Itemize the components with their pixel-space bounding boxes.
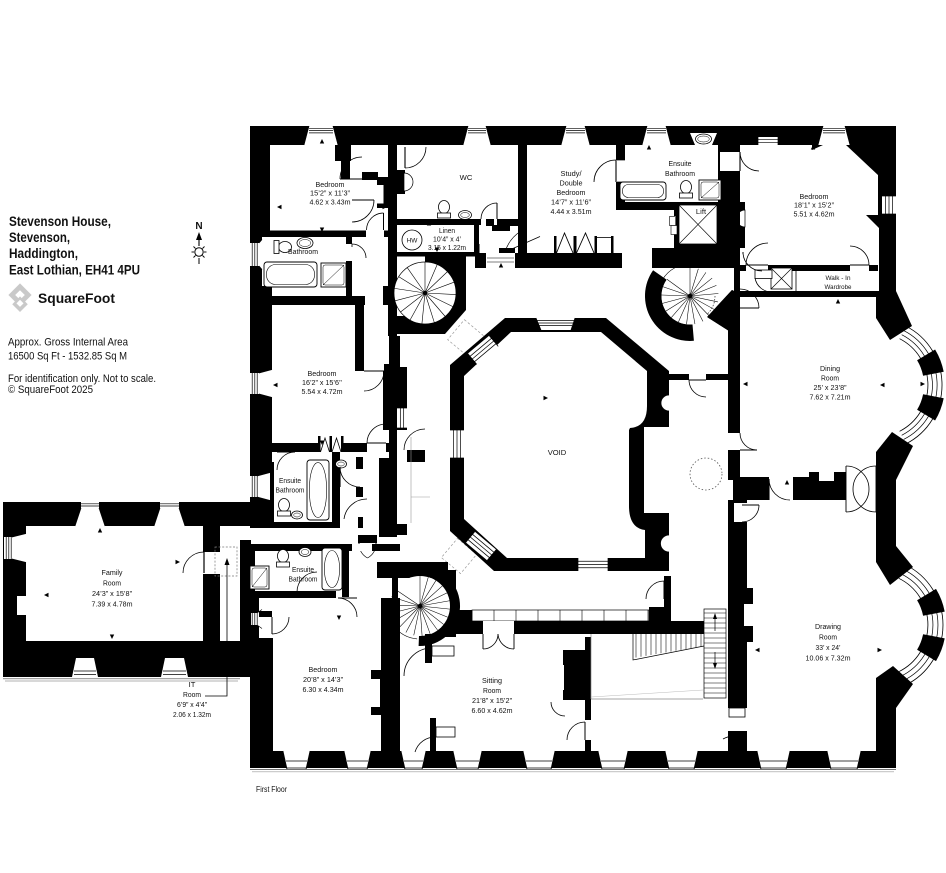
svg-text:Double: Double	[560, 179, 583, 188]
svg-text:16’2” x 15’6’’: 16’2” x 15’6’’	[302, 378, 342, 387]
svg-text:25’ x 23’8”: 25’ x 23’8”	[814, 383, 847, 392]
svg-text:21’8” x 15’2”: 21’8” x 15’2”	[472, 696, 512, 705]
svg-text:7.39 x 4.78m: 7.39 x 4.78m	[92, 600, 133, 609]
svg-text:IT: IT	[189, 680, 196, 689]
svg-text:Ensuite: Ensuite	[279, 476, 301, 485]
svg-text:16500 Sq Ft - 1532.85 Sq M: 16500 Sq Ft - 1532.85 Sq M	[8, 351, 127, 363]
svg-text:6.60 x 4.62m: 6.60 x 4.62m	[472, 706, 513, 715]
svg-text:Lift: Lift	[696, 207, 707, 216]
svg-text:4.62 x 3.43m: 4.62 x 3.43m	[310, 197, 351, 206]
svg-text:Bathroom: Bathroom	[288, 247, 318, 256]
svg-text:Bedroom: Bedroom	[800, 192, 829, 201]
svg-text:5.51 x 4.62m: 5.51 x 4.62m	[794, 209, 835, 218]
svg-text:Family: Family	[102, 568, 123, 577]
svg-text:18’1” x 15’2”: 18’1” x 15’2”	[794, 201, 834, 210]
svg-text:3.15 x 1.22m: 3.15 x 1.22m	[428, 243, 466, 252]
svg-text:Wardrobe: Wardrobe	[825, 284, 852, 291]
svg-text:Approx. Gross Internal Area: Approx. Gross Internal Area	[8, 337, 128, 349]
svg-text:Room: Room	[103, 579, 121, 588]
svg-text:4.44 x 3.51m: 4.44 x 3.51m	[551, 207, 592, 216]
svg-text:24’3” x 15’8”: 24’3” x 15’8”	[92, 589, 132, 598]
svg-text:10.06 x 7.32m: 10.06 x 7.32m	[806, 654, 851, 663]
svg-text:2.06 x 1.32m: 2.06 x 1.32m	[173, 710, 211, 719]
svg-text:Room: Room	[483, 686, 501, 695]
svg-text:Bathroom: Bathroom	[276, 486, 305, 495]
svg-text:7.62 x 7.21m: 7.62 x 7.21m	[810, 393, 851, 402]
svg-text:WC: WC	[460, 173, 473, 182]
svg-text:Stevenson,: Stevenson,	[9, 229, 70, 245]
svg-text:Bedroom: Bedroom	[308, 369, 337, 378]
svg-text:33’ x 24’: 33’ x 24’	[816, 643, 841, 652]
svg-text:N: N	[195, 221, 202, 232]
svg-text:5.54 x 4.72m: 5.54 x 4.72m	[302, 387, 343, 396]
svg-text:Haddington,: Haddington,	[9, 245, 78, 261]
svg-text:Dining: Dining	[820, 364, 840, 373]
svg-text:Study/: Study/	[561, 169, 583, 178]
svg-text:Room: Room	[821, 374, 839, 383]
svg-text:HW: HW	[407, 238, 419, 245]
svg-text:Bedroom: Bedroom	[557, 188, 586, 197]
svg-text:Bedroom: Bedroom	[309, 665, 338, 674]
svg-text:14’7” x 11’6”: 14’7” x 11’6”	[551, 198, 591, 207]
svg-text:Drawing: Drawing	[815, 622, 841, 631]
svg-text:East Lothian, EH41 4PU: East Lothian, EH41 4PU	[9, 262, 140, 278]
svg-text:Ensuite: Ensuite	[292, 565, 314, 574]
svg-text:20’8” x 14’3”: 20’8” x 14’3”	[303, 675, 343, 684]
svg-text:SquareFoot: SquareFoot	[38, 291, 116, 306]
svg-text:6’9” x 4’4”: 6’9” x 4’4”	[177, 700, 207, 709]
svg-text:Bedroom: Bedroom	[316, 180, 345, 189]
svg-text:6.30 x 4.34m: 6.30 x 4.34m	[303, 685, 344, 694]
svg-text:VOID: VOID	[548, 448, 567, 457]
svg-text:Bathroom: Bathroom	[665, 169, 695, 178]
svg-text:Ensuite: Ensuite	[669, 159, 692, 168]
svg-text:© SquareFoot 2025: © SquareFoot 2025	[8, 384, 93, 396]
svg-text:Bathroom: Bathroom	[289, 575, 318, 584]
svg-text:Stevenson House,: Stevenson House,	[9, 213, 111, 229]
svg-text:Room: Room	[183, 690, 201, 699]
svg-text:First Floor: First Floor	[256, 785, 287, 794]
svg-text:Walk - In: Walk - In	[826, 275, 851, 282]
svg-text:15’2” x 11’3”: 15’2” x 11’3”	[310, 189, 350, 198]
svg-text:Sitting: Sitting	[482, 676, 502, 685]
svg-text:Room: Room	[819, 633, 837, 642]
